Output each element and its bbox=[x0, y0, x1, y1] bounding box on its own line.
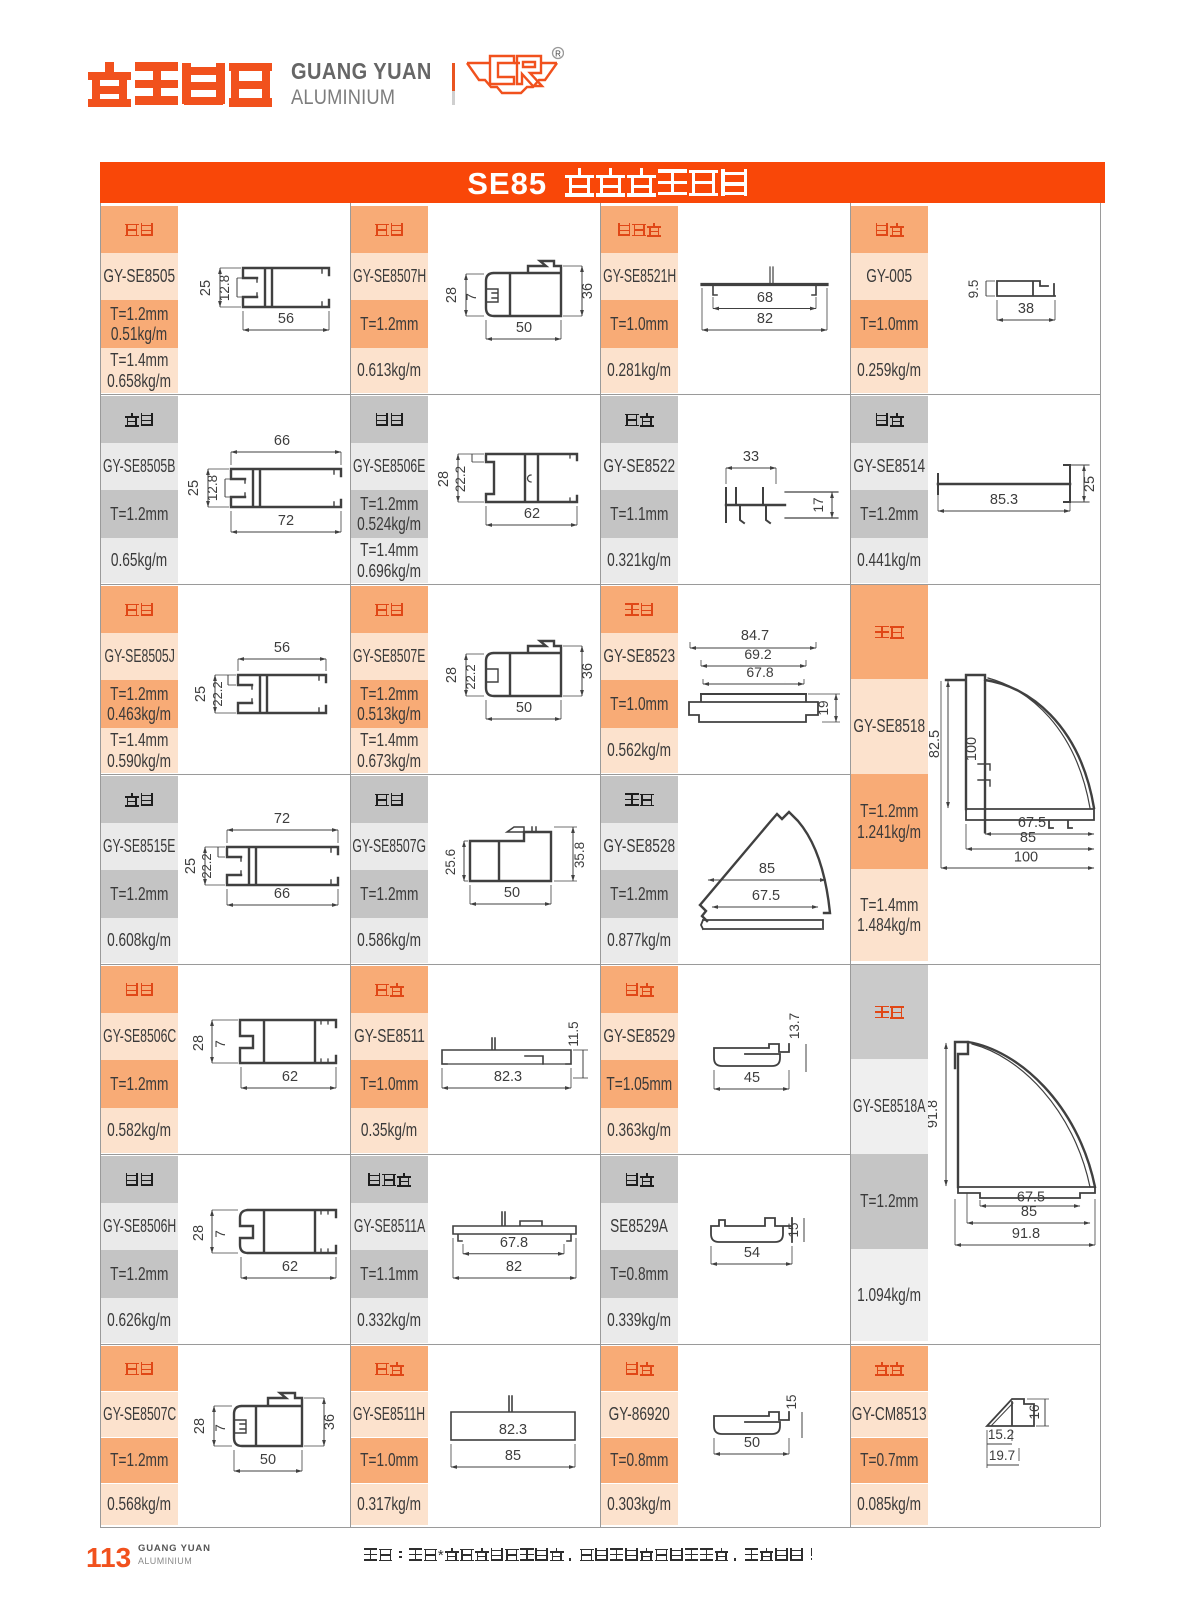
svg-text:67.5: 67.5 bbox=[1018, 815, 1046, 831]
svg-text:56: 56 bbox=[278, 311, 294, 327]
svg-text:50: 50 bbox=[744, 1435, 760, 1451]
svg-text:67.5: 67.5 bbox=[752, 888, 780, 904]
svg-text:54: 54 bbox=[744, 1245, 760, 1261]
svg-text:7: 7 bbox=[464, 293, 479, 301]
svg-text:25: 25 bbox=[198, 280, 214, 296]
svg-text:84.7: 84.7 bbox=[741, 628, 769, 644]
svg-text:28: 28 bbox=[191, 1035, 207, 1051]
svg-text:15: 15 bbox=[786, 1222, 801, 1237]
svg-text:85: 85 bbox=[505, 1448, 521, 1464]
svg-text:50: 50 bbox=[516, 320, 532, 336]
svg-text:35.8: 35.8 bbox=[572, 842, 587, 868]
svg-text:66: 66 bbox=[274, 886, 290, 902]
svg-text:85: 85 bbox=[1021, 1204, 1037, 1220]
svg-text:25: 25 bbox=[193, 686, 209, 702]
svg-text:9.5: 9.5 bbox=[966, 280, 981, 299]
svg-text:85: 85 bbox=[1020, 830, 1036, 846]
svg-text:36: 36 bbox=[580, 663, 596, 679]
svg-text:91.8: 91.8 bbox=[1012, 1226, 1040, 1242]
svg-text:19.7: 19.7 bbox=[989, 1448, 1015, 1463]
svg-text:22.2: 22.2 bbox=[453, 466, 468, 492]
svg-text:91.8: 91.8 bbox=[928, 1100, 941, 1128]
svg-text:38: 38 bbox=[1018, 301, 1034, 317]
svg-text:50: 50 bbox=[260, 1452, 276, 1468]
svg-text:62: 62 bbox=[282, 1069, 298, 1085]
svg-text:R: R bbox=[555, 50, 561, 59]
svg-text:82: 82 bbox=[757, 311, 773, 327]
svg-text:28: 28 bbox=[191, 1225, 207, 1241]
svg-text:12.8: 12.8 bbox=[217, 275, 232, 301]
svg-text:82: 82 bbox=[506, 1259, 522, 1275]
svg-text:72: 72 bbox=[278, 513, 294, 529]
svg-text:67.8: 67.8 bbox=[746, 664, 773, 680]
svg-text:72: 72 bbox=[274, 811, 290, 827]
svg-text:36: 36 bbox=[580, 283, 596, 299]
svg-text:28: 28 bbox=[444, 287, 460, 303]
svg-text:36: 36 bbox=[322, 1414, 338, 1430]
svg-text:25: 25 bbox=[1082, 476, 1098, 492]
svg-text:17: 17 bbox=[811, 497, 826, 512]
svg-text:66: 66 bbox=[274, 433, 290, 449]
svg-text:100: 100 bbox=[964, 737, 980, 761]
svg-text:12.8: 12.8 bbox=[205, 475, 220, 501]
svg-text:50: 50 bbox=[504, 885, 520, 901]
svg-text:22.2: 22.2 bbox=[210, 681, 225, 706]
svg-text:28: 28 bbox=[444, 667, 460, 683]
svg-text:19: 19 bbox=[816, 700, 831, 715]
svg-text:25.6: 25.6 bbox=[443, 849, 458, 875]
svg-text:7: 7 bbox=[213, 1230, 228, 1238]
svg-text:82.3: 82.3 bbox=[494, 1069, 522, 1085]
svg-text:16: 16 bbox=[1027, 1404, 1042, 1419]
svg-text:68: 68 bbox=[757, 290, 773, 306]
svg-text:22.2: 22.2 bbox=[199, 853, 214, 878]
svg-text:100: 100 bbox=[1014, 850, 1038, 866]
svg-text:13.7: 13.7 bbox=[787, 1013, 802, 1039]
svg-text:28: 28 bbox=[192, 1418, 208, 1434]
svg-text:56: 56 bbox=[274, 640, 290, 656]
svg-text:11.5: 11.5 bbox=[566, 1021, 581, 1046]
svg-text:33: 33 bbox=[743, 449, 759, 465]
svg-text:62: 62 bbox=[282, 1259, 298, 1275]
svg-text:45: 45 bbox=[744, 1070, 760, 1086]
svg-text:28: 28 bbox=[436, 471, 452, 487]
svg-text:15.2: 15.2 bbox=[988, 1427, 1014, 1442]
svg-text:50: 50 bbox=[516, 700, 532, 716]
svg-text:69.2: 69.2 bbox=[744, 646, 771, 662]
svg-text:15: 15 bbox=[784, 1394, 799, 1409]
svg-text:7: 7 bbox=[213, 1040, 228, 1048]
svg-text:82.3: 82.3 bbox=[499, 1422, 527, 1438]
svg-text:22.2: 22.2 bbox=[463, 664, 478, 689]
svg-text:67.8: 67.8 bbox=[500, 1235, 528, 1251]
svg-text:7: 7 bbox=[213, 1424, 228, 1432]
svg-text:25: 25 bbox=[186, 480, 202, 496]
svg-text:25: 25 bbox=[183, 858, 199, 874]
svg-text:85.3: 85.3 bbox=[990, 492, 1018, 508]
svg-text:62: 62 bbox=[524, 506, 540, 522]
svg-text:85: 85 bbox=[759, 861, 775, 877]
